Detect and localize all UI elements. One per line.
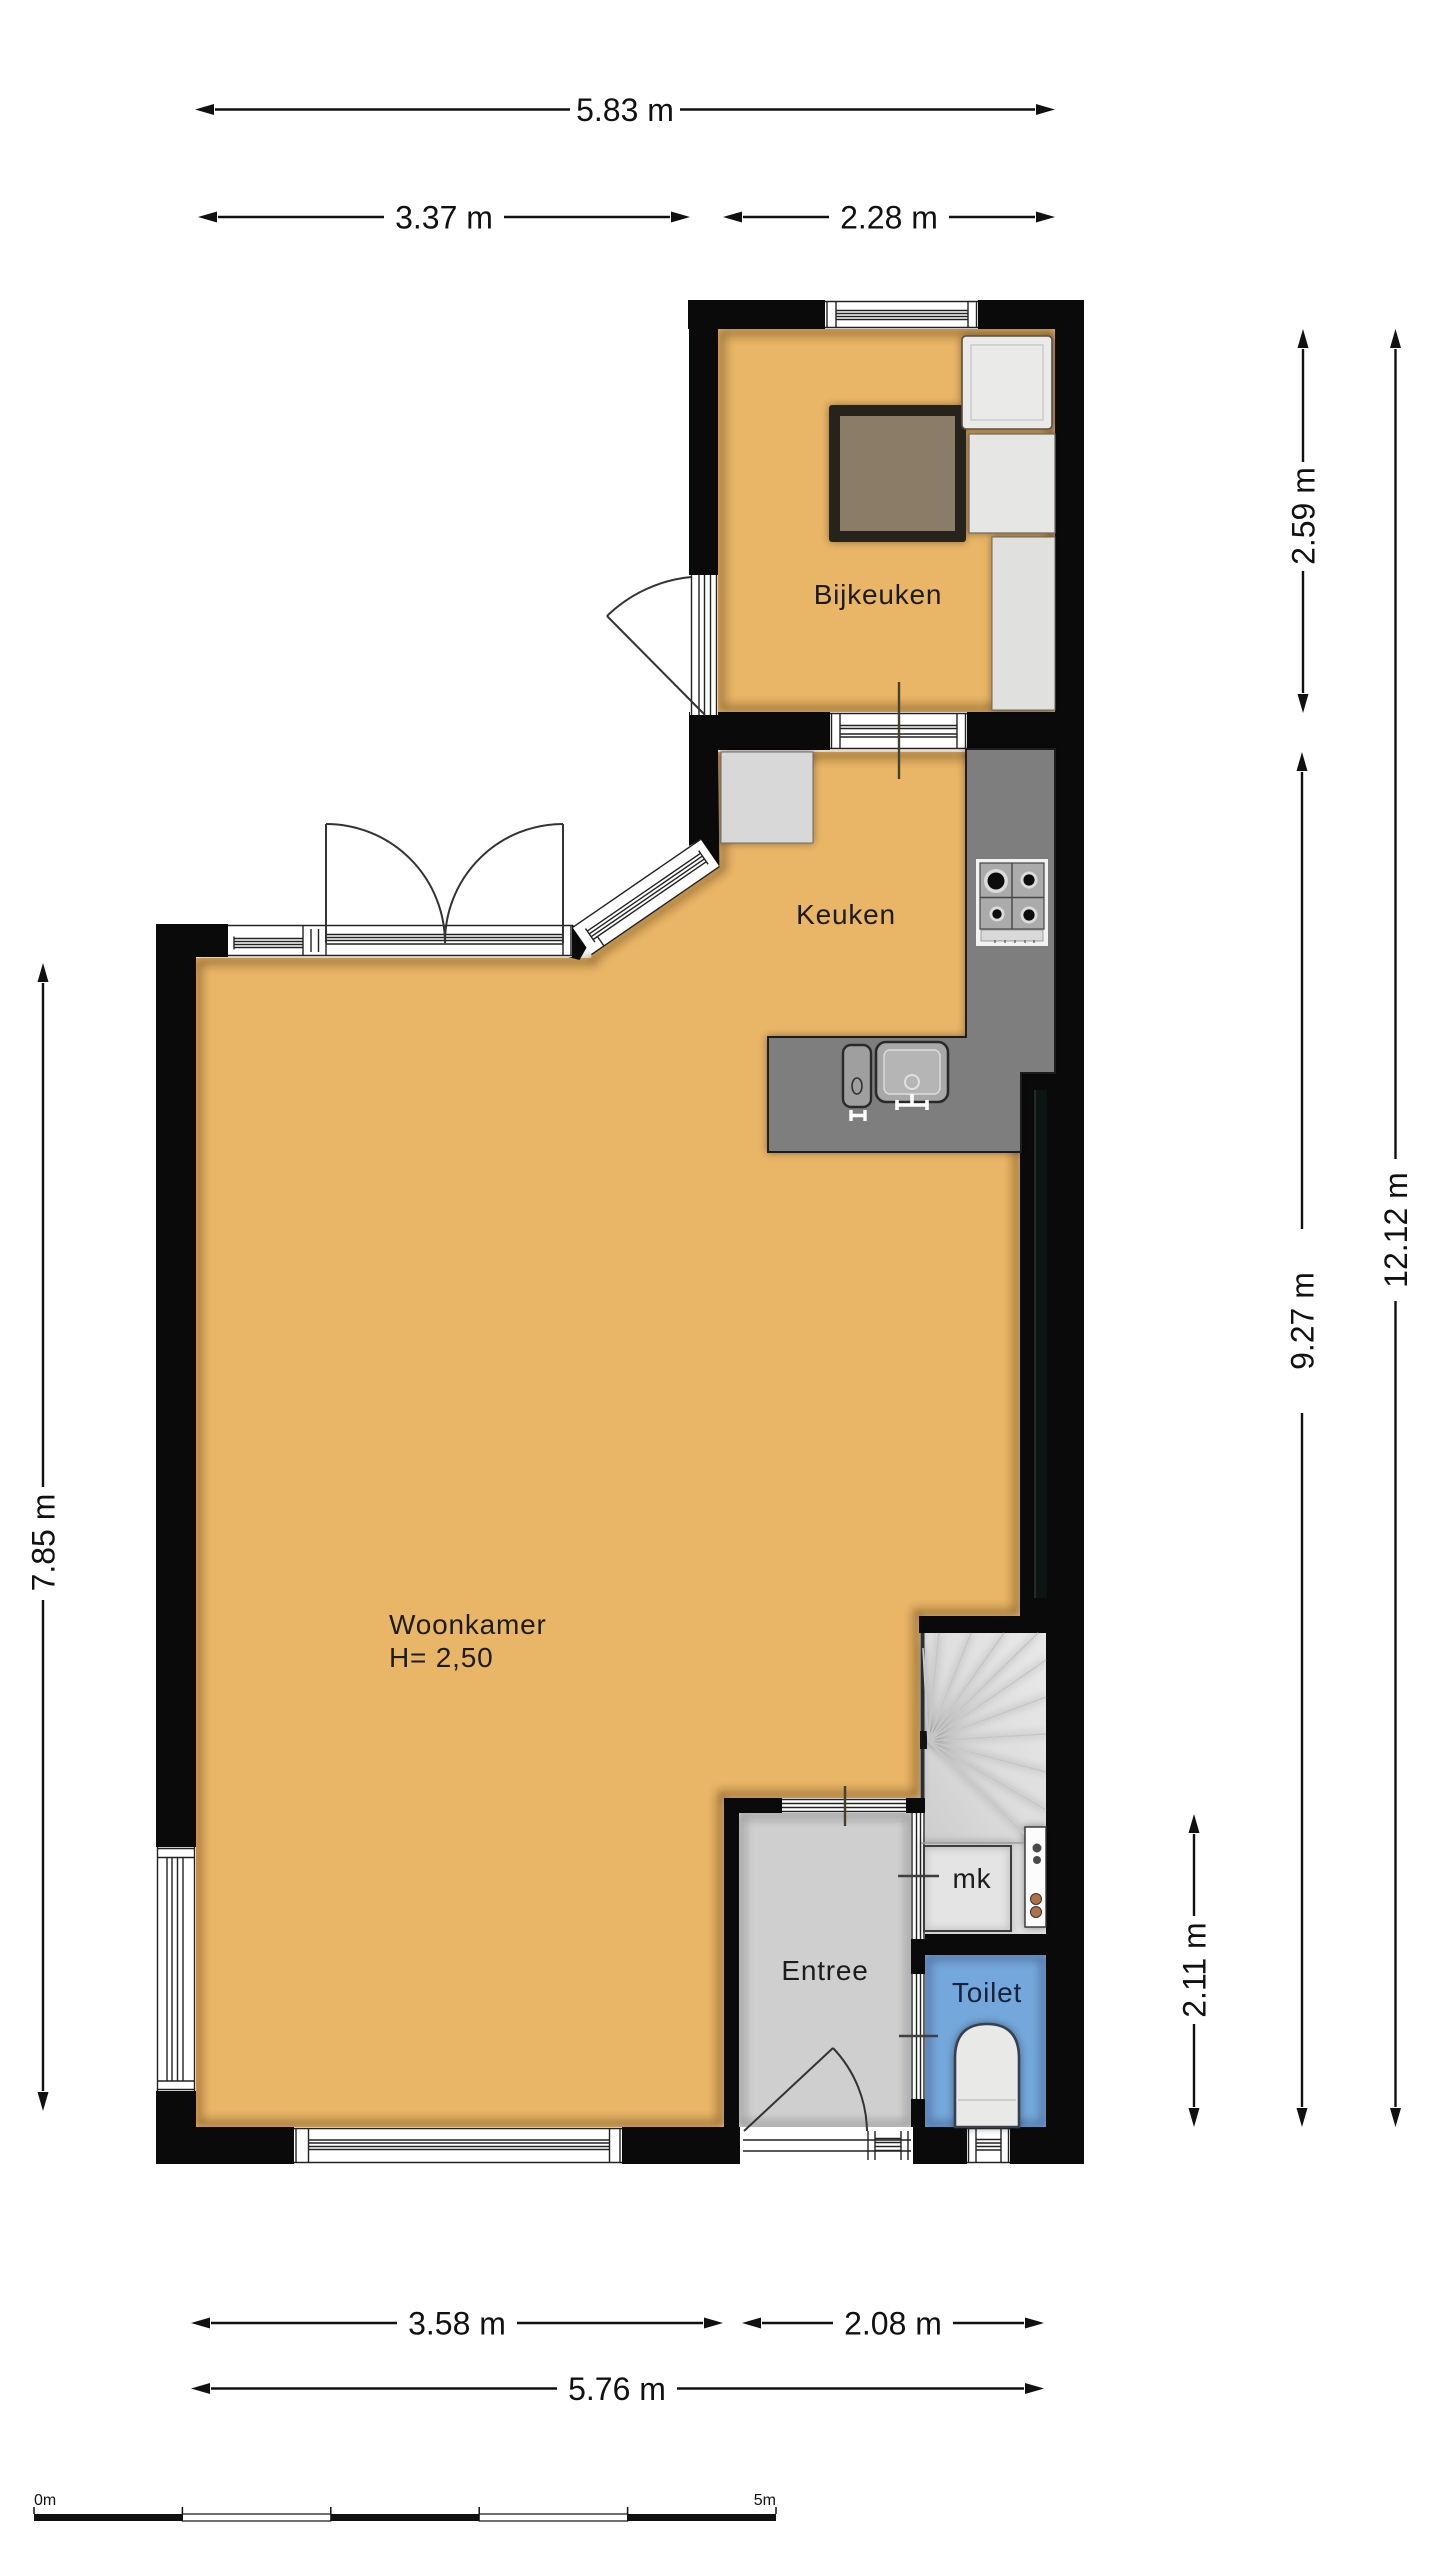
- svg-text:Entree: Entree: [781, 1955, 868, 1986]
- svg-text:9.27 m: 9.27 m: [1285, 1272, 1321, 1370]
- svg-text:mk: mk: [953, 1863, 992, 1894]
- svg-text:3.37 m: 3.37 m: [395, 200, 493, 236]
- svg-text:5.76 m: 5.76 m: [568, 2371, 666, 2407]
- svg-text:2.08 m: 2.08 m: [844, 2306, 942, 2342]
- svg-text:0m: 0m: [34, 2492, 56, 2509]
- svg-text:7.85 m: 7.85 m: [26, 1494, 62, 1592]
- svg-text:2.59 m: 2.59 m: [1286, 467, 1322, 565]
- svg-text:12.12 m: 12.12 m: [1378, 1172, 1414, 1288]
- svg-text:2.28 m: 2.28 m: [840, 200, 938, 236]
- svg-text:Woonkamer: Woonkamer: [389, 1609, 547, 1640]
- svg-text:Bijkeuken: Bijkeuken: [814, 579, 943, 610]
- svg-text:2.11 m: 2.11 m: [1177, 1922, 1213, 2017]
- svg-text:5m: 5m: [754, 2492, 776, 2509]
- svg-text:Keuken: Keuken: [796, 899, 896, 930]
- svg-text:3.58 m: 3.58 m: [408, 2306, 506, 2342]
- svg-text:5.83 m: 5.83 m: [576, 92, 674, 128]
- svg-text:Toilet: Toilet: [952, 1977, 1022, 2008]
- svg-text:H= 2,50: H= 2,50: [389, 1642, 493, 1673]
